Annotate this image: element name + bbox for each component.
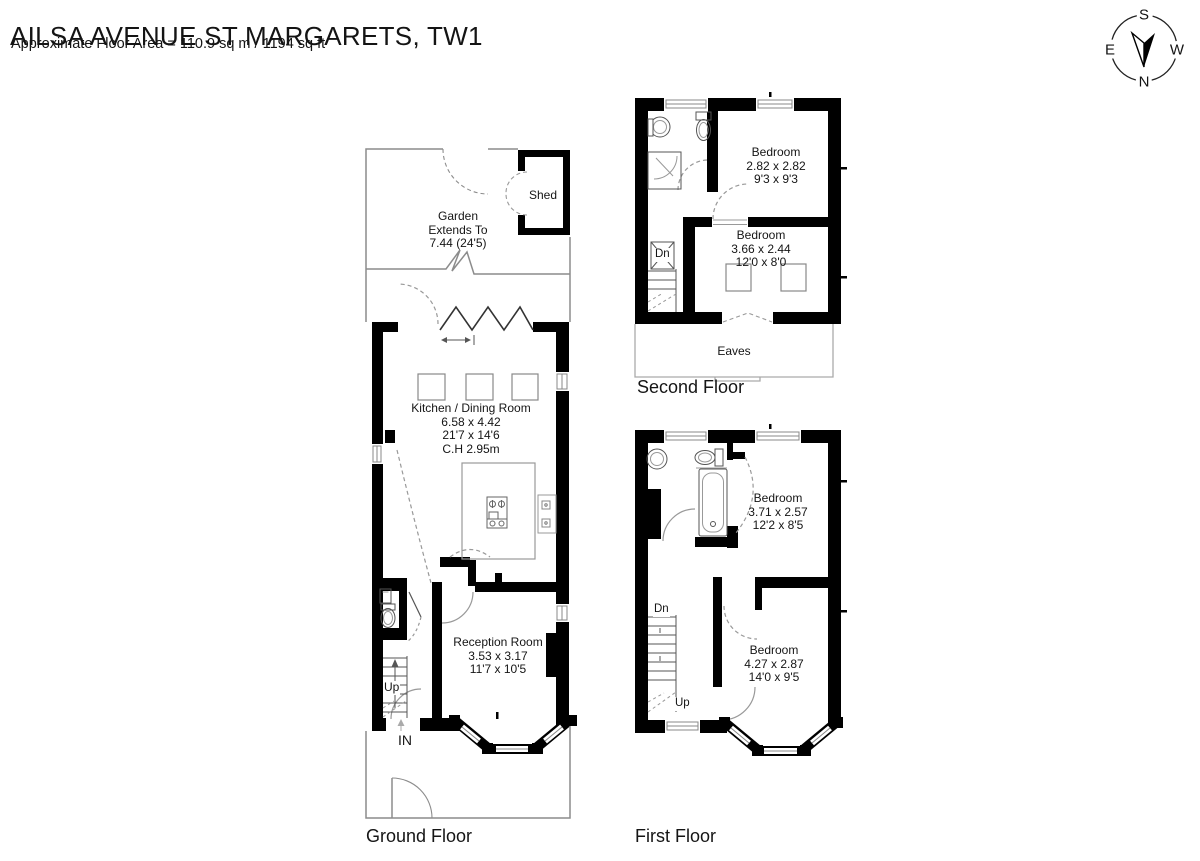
- compass-north-label: N: [1137, 74, 1152, 91]
- entrance-in-label: IN: [398, 734, 412, 748]
- second-floor-title: Second Floor: [637, 381, 744, 395]
- garden-label: Garden Extends To 7.44 (24'5): [428, 210, 487, 251]
- toilet-cistern: [381, 604, 395, 610]
- rooflight: [418, 374, 445, 400]
- first-floor-drawing: [635, 424, 847, 756]
- counter-appliances: [538, 495, 556, 533]
- ground-floor-title: Ground Floor: [366, 830, 472, 844]
- first-bedroom-rear-label: Bedroom 3.71 x 2.57 12'2 x 8'5: [748, 492, 807, 533]
- first-stairs-dn-label: Dn: [653, 603, 670, 617]
- first-bedroom-front-label: Bedroom 4.27 x 2.87 14'0 x 9'5: [744, 644, 803, 685]
- second-bedroom-front-label: Bedroom 3.66 x 2.44 12'0 x 8'0: [731, 229, 790, 270]
- compass-south-label: S: [1137, 7, 1151, 24]
- floorplan-page: { "header": { "title": "AILSA AVENUE ST …: [0, 0, 1200, 861]
- first-stairs-up-label: Up: [674, 697, 691, 711]
- shower-tray: [648, 152, 681, 189]
- floor-area-subtitle: Approximate Floor Area = 110.9 sq m / 11…: [11, 36, 325, 52]
- compass-east-label: E: [1103, 42, 1117, 59]
- first-bay-window: [719, 717, 843, 756]
- hob: [487, 497, 507, 528]
- eaves-label: Eaves: [717, 345, 750, 359]
- second-bedroom-rear-label: Bedroom 2.82 x 2.82 9'3 x 9'3: [746, 146, 805, 187]
- toilet-cistern: [715, 449, 723, 466]
- second-stairs-dn-label: Dn: [654, 248, 671, 262]
- bifold-doors: [440, 307, 533, 330]
- rooflight: [512, 374, 538, 400]
- rooflight: [466, 374, 493, 400]
- ground-stairs-up-label: Up: [383, 681, 400, 695]
- bifold-slide-arrow: [441, 335, 474, 345]
- floorplan-drawing: [0, 0, 1200, 861]
- compass-needle-dark: [1144, 33, 1155, 67]
- first-floor-title: First Floor: [635, 830, 716, 844]
- shower-room-fixtures: [648, 112, 711, 189]
- reception-label: Reception Room 3.53 x 3.17 11'7 x 10'5: [453, 636, 542, 677]
- entry-arrow: [398, 719, 405, 731]
- kitchen-island: [462, 463, 535, 559]
- compass-needle-light: [1132, 33, 1144, 67]
- compass-west-label: W: [1168, 42, 1186, 59]
- shed-label: Shed: [529, 189, 557, 203]
- first-stairs: [648, 615, 676, 712]
- kitchen-label: Kitchen / Dining Room 6.58 x 4.42 21'7 x…: [411, 402, 530, 456]
